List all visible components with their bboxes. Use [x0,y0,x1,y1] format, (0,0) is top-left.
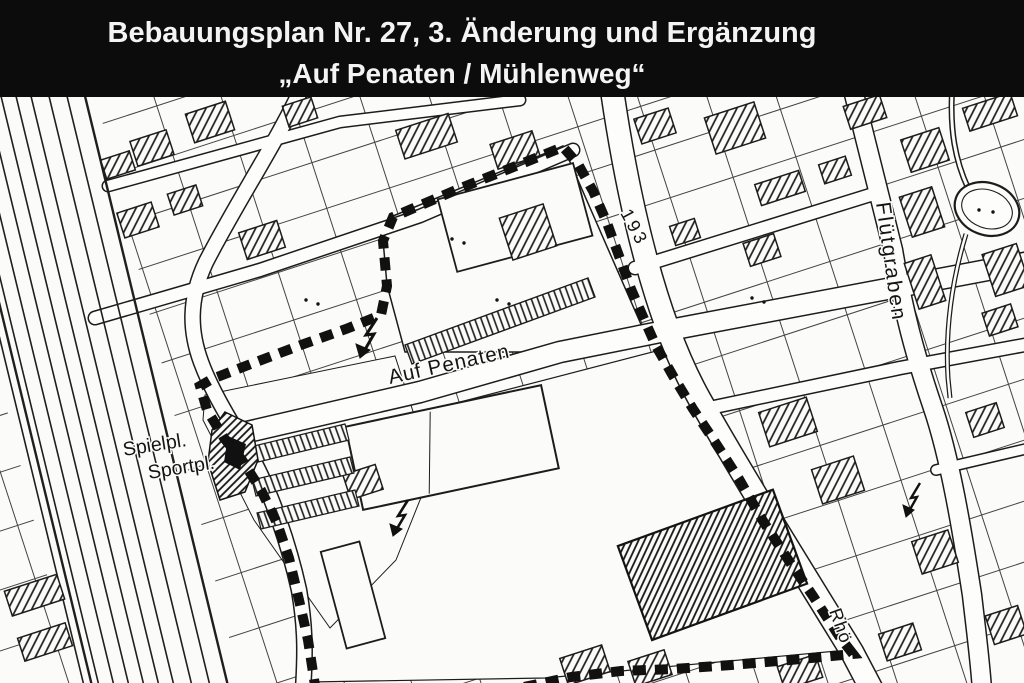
plan-title-line1: Bebauungsplan Nr. 27, 3. Änderung und Er… [108,16,817,49]
map-canvas: Auf Penaten Spielpl. Sportpl. Flütgraben… [0,0,1024,683]
plan-title-line2: „Auf Penaten / Mühlenweg“ [278,58,645,89]
bebauungsplan-map-page: Auf Penaten Spielpl. Sportpl. Flütgraben… [0,0,1024,683]
title-banner: Bebauungsplan Nr. 27, 3. Änderung und Er… [0,0,1024,97]
